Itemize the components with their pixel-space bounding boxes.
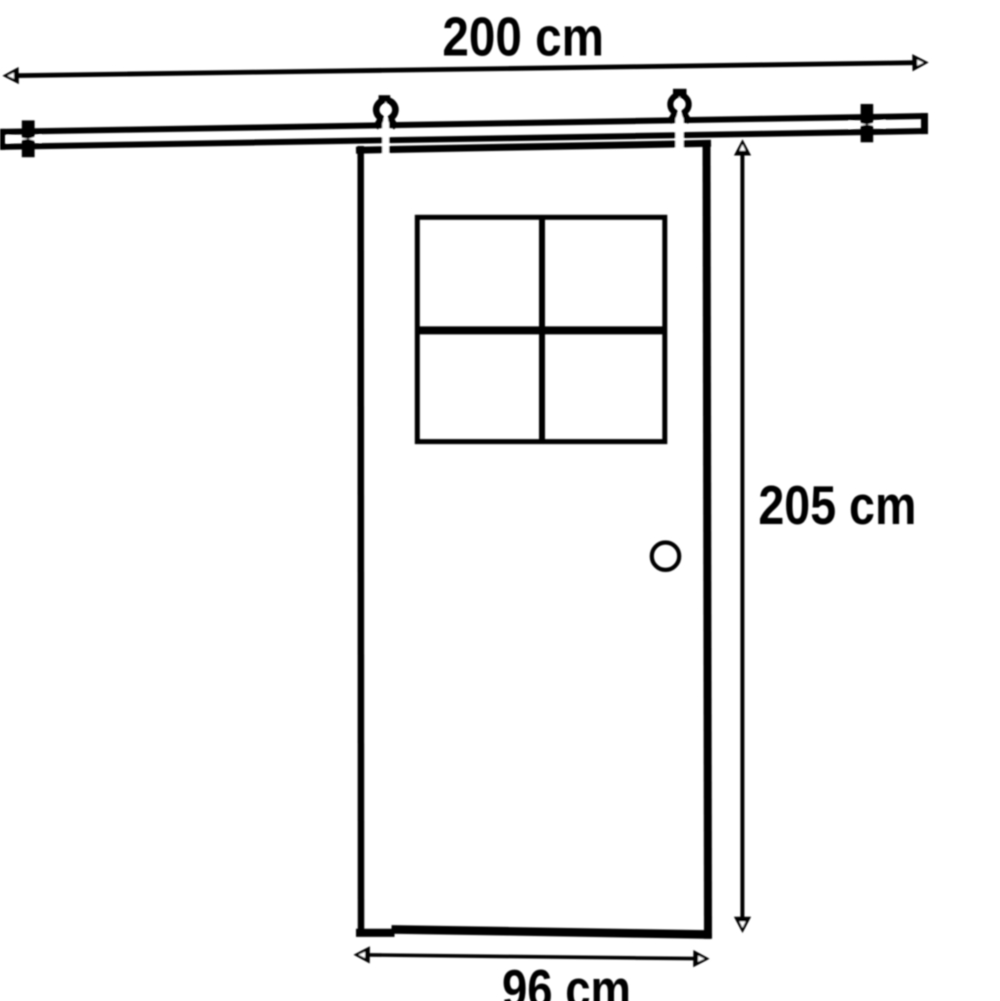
svg-text:96 cm: 96 cm — [502, 958, 631, 1001]
svg-text:205 cm: 205 cm — [758, 474, 916, 536]
svg-text:200 cm: 200 cm — [442, 6, 604, 68]
